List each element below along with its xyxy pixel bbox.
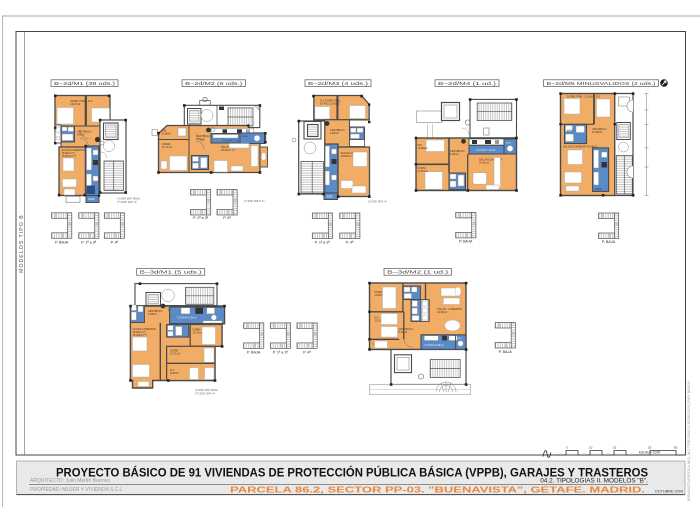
svg-text:10.96m2: 10.96m2 — [418, 146, 429, 150]
svg-text:TEND: TEND — [242, 136, 248, 138]
svg-text:04.2. TIPOLOGIAS II. MODELOS ": 04.2. TIPOLOGIAS II. MODELOS "B". — [540, 478, 648, 485]
svg-text:P. 4ª: P. 4ª — [223, 216, 231, 220]
svg-text:13.97m2: 13.97m2 — [70, 102, 81, 106]
svg-text:P. BAJA: P. BAJA — [459, 240, 473, 244]
svg-text:COCINA 8.28m2: COCINA 8.28m2 — [425, 343, 445, 347]
svg-text:P. BAJA: P. BAJA — [55, 241, 69, 245]
svg-text:P. 1ª a 3ª: P. 1ª a 3ª — [315, 241, 331, 245]
svg-text:5: 5 — [566, 446, 568, 450]
svg-text:15: 15 — [613, 446, 617, 450]
svg-text:B–2d/M1 (38 uds.): B–2d/M1 (38 uds.) — [54, 81, 116, 87]
svg-text:COCINA 7.49m2: COCINA 7.49m2 — [476, 148, 496, 152]
svg-text:TEND: TEND — [457, 338, 463, 340]
svg-text:20: 20 — [648, 446, 652, 450]
svg-text:(*) SUP. 39A P. 4ª: (*) SUP. 39A P. 4ª — [244, 199, 264, 203]
svg-text:18.06m2 (*): 18.06m2 (*) — [221, 148, 235, 152]
svg-text:TERR.: TERR. — [88, 198, 96, 201]
svg-text:TEND: TEND — [505, 143, 511, 145]
svg-text:6.28m2: 6.28m2 — [148, 312, 157, 316]
svg-text:24.21m2: 24.21m2 — [479, 161, 490, 165]
svg-text:TERR.: TERR. — [326, 196, 334, 199]
svg-text:MODELOS TIPO B: MODELOS TIPO B — [19, 214, 25, 273]
svg-text:D-2: D-2 — [88, 99, 93, 103]
svg-text:ESCALA 1/200: ESCALA 1/200 — [639, 450, 660, 454]
svg-text:P. 1ª a 3ª: P. 1ª a 3ª — [81, 241, 97, 245]
svg-text:8.74m2 12.86m2: 8.74m2 12.86m2 — [320, 102, 340, 106]
svg-text:11.87m2: 11.87m2 — [418, 169, 428, 173]
svg-text:P. 4ª: P. 4ª — [346, 241, 354, 245]
svg-text:10.71m2: 10.71m2 — [170, 352, 181, 356]
svg-text:DORM. PPAL. 13.20m2: DORM. PPAL. 13.20m2 — [567, 95, 595, 99]
svg-text:18.36m2 (**): 18.36m2 (**) — [132, 333, 147, 337]
svg-text:COCINA 8.28m2: COCINA 8.28m2 — [177, 316, 197, 320]
svg-text:10.71m2: 10.71m2 — [162, 145, 173, 149]
svg-text:10: 10 — [589, 446, 593, 450]
svg-text:6.26m2: 6.26m2 — [330, 131, 339, 135]
svg-text:8.28m2: 8.28m2 — [170, 371, 179, 375]
svg-text:BAÑO: BAÑO — [404, 290, 410, 293]
svg-text:B–2d/M5 MINUSVALIDOS (2 uds.: B–2d/M5 MINUSVALIDOS (2 uds.) — [547, 81, 657, 87]
svg-text:P. 1ª a 3ª: P. 1ª a 3ª — [273, 351, 289, 355]
svg-text:P. BAJA: P. BAJA — [247, 351, 261, 355]
svg-text:P. BAJA: P. BAJA — [602, 240, 616, 244]
svg-text:19.09m2: 19.09m2 — [437, 310, 448, 314]
svg-text:6.28m2: 6.28m2 — [162, 132, 171, 136]
svg-text:10.28m2: 10.28m2 — [592, 130, 603, 134]
svg-text:BUENAVISTA (PARCELA 86.2)_04.2: BUENAVISTA (PARCELA 86.2)_04.2 TIPOLOGIA… — [687, 381, 691, 501]
svg-text:B–2d/M2 (8 uds.): B–2d/M2 (8 uds.) — [185, 81, 243, 87]
svg-text:P. 4ª: P. 4ª — [111, 241, 119, 245]
svg-text:(**) SUP. 39 P. 4ª: (**) SUP. 39 P. 4ª — [195, 392, 215, 396]
svg-text:TERR.: TERR. — [595, 188, 603, 191]
svg-text:PROPIEDAD: MUJER Y VIVIENDA S.: PROPIEDAD: MUJER Y VIVIENDA S.C.L. — [30, 487, 124, 493]
svg-text:P. 4ª: P. 4ª — [303, 351, 311, 355]
svg-text:OCTUBRE 2009: OCTUBRE 2009 — [655, 490, 683, 494]
svg-text:50: 50 — [674, 446, 678, 450]
svg-text:(**) SUP. 39 P. 4ª: (**) SUP. 39 P. 4ª — [117, 200, 137, 204]
svg-text:B–3d/M1 (5 uds.): B–3d/M1 (5 uds.) — [140, 270, 203, 276]
svg-text:18.36m2 (**): 18.36m2 (**) — [62, 154, 77, 158]
svg-text:PARCELA 86.2, SECTOR PP-03. "B: PARCELA 86.2, SECTOR PP-03. "BUENAVISTA"… — [230, 485, 645, 495]
svg-text:(*) SUP. 39 P. 4ª: (*) SUP. 39 P. 4ª — [368, 200, 387, 204]
svg-text:(*) SUP. 05 P. BAJA: (*) SUP. 05 P. BAJA — [195, 388, 218, 392]
svg-text:B–2d/M4 (1 ud.): B–2d/M4 (1 ud.) — [438, 81, 497, 87]
svg-text:6.95m2: 6.95m2 — [450, 152, 459, 156]
svg-text:ARQUITECTO: Julio Martín Barr: ARQUITECTO: Julio Martín Barroso — [30, 478, 110, 484]
svg-text:COCINA 7.73m2: COCINA 7.73m2 — [222, 139, 242, 143]
svg-text:(*) SUP. 05 P. BAJA: (*) SUP. 05 P. BAJA — [117, 197, 140, 201]
svg-text:P. 1ª a 3ª: P. 1ª a 3ª — [193, 216, 209, 220]
svg-text:6.8m2: 6.8m2 — [77, 133, 85, 137]
svg-text:P. BAJA: P. BAJA — [499, 350, 513, 354]
svg-text:B–2d/M3 (4 uds.): B–2d/M3 (4 uds.) — [308, 81, 369, 87]
svg-text:18.06m2 (*): 18.06m2 (*) — [341, 154, 355, 158]
svg-text:B–3d/M2 (1 ud.): B–3d/M2 (1 ud.) — [387, 270, 449, 276]
svg-text:BAÑO: BAÑO — [567, 130, 574, 133]
svg-text:D-2: D-2 — [596, 95, 601, 99]
svg-text:8.28m2: 8.28m2 — [399, 330, 408, 334]
